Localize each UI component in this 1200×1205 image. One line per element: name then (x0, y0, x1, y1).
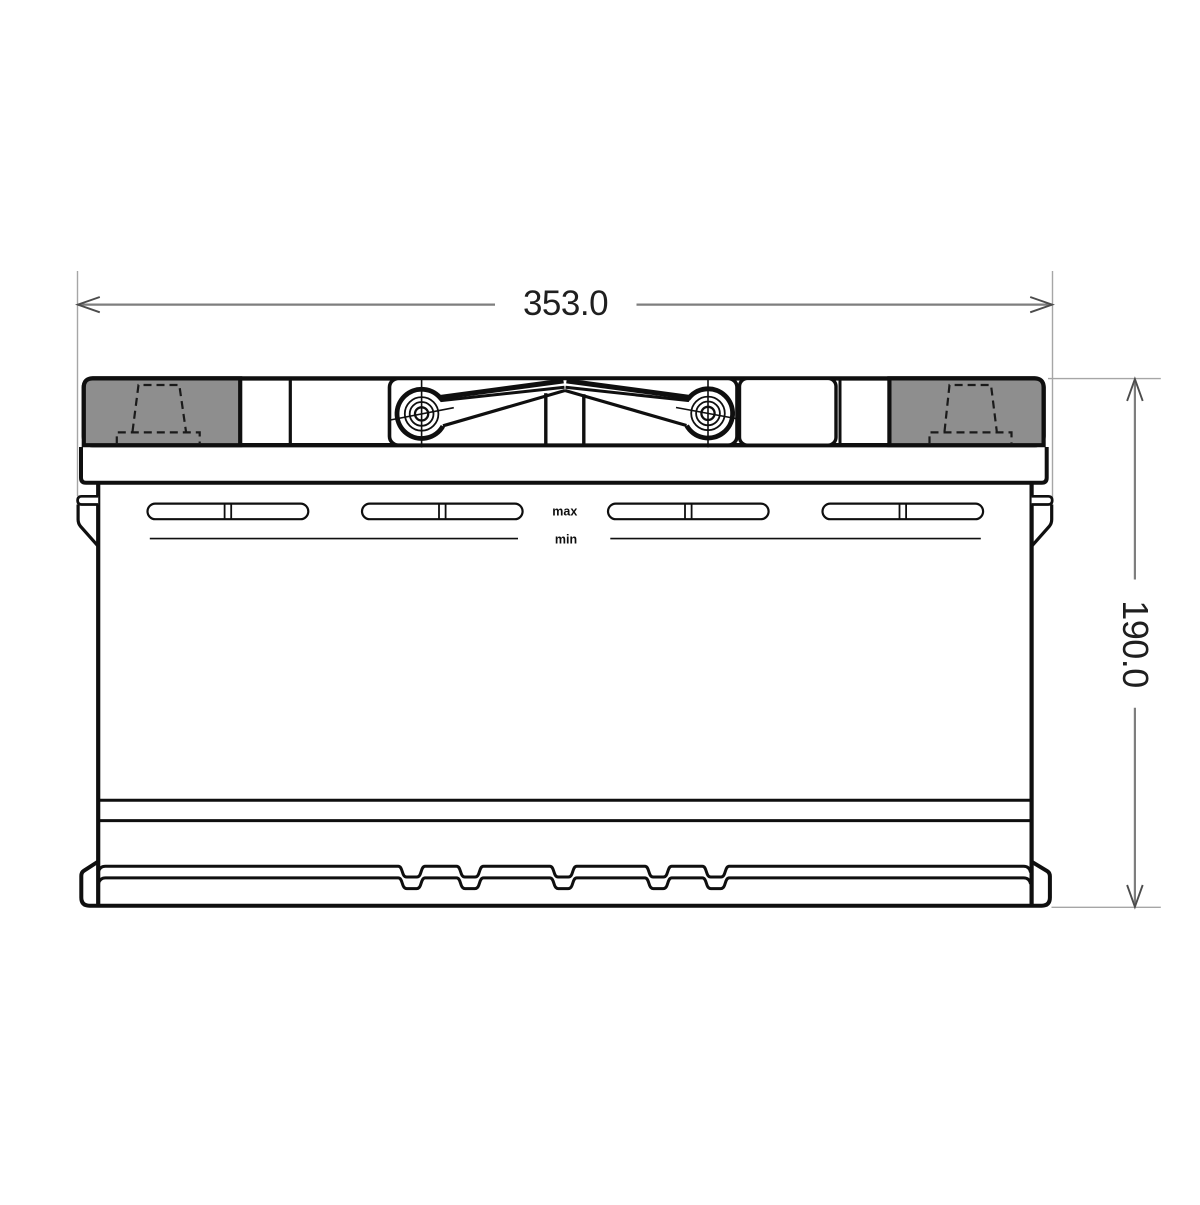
svg-text:min: min (555, 533, 577, 547)
svg-text:max: max (552, 504, 577, 518)
svg-text:190.0: 190.0 (1115, 600, 1156, 688)
svg-text:353.0: 353.0 (523, 284, 608, 323)
